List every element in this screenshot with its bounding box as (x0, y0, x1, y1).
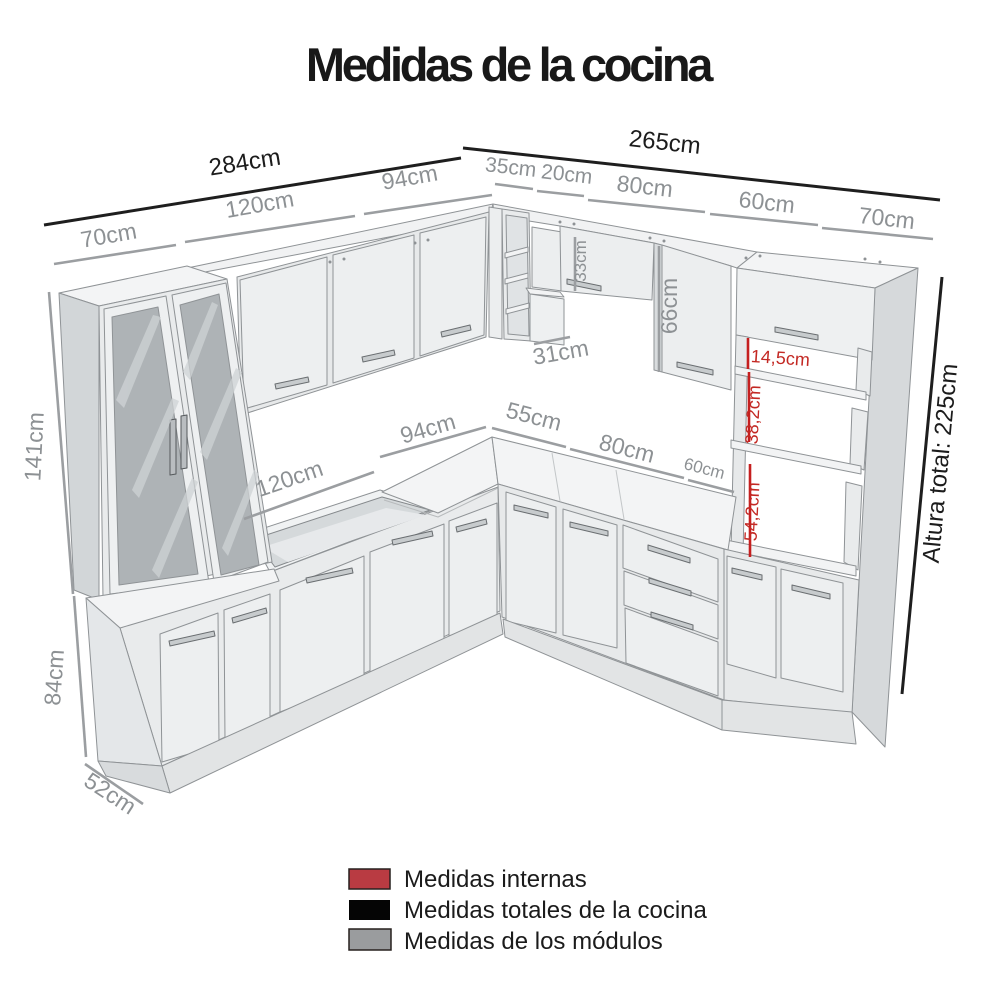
svg-text:Medidas totales de la cocina: Medidas totales de la cocina (404, 897, 708, 924)
svg-text:141cm: 141cm (19, 411, 49, 481)
svg-text:Medidas de los módulos: Medidas de los módulos (404, 928, 663, 955)
svg-text:33cm: 33cm (571, 240, 590, 282)
svg-text:14,5cm: 14,5cm (750, 346, 810, 370)
svg-text:54,2cm: 54,2cm (740, 482, 763, 542)
svg-text:Medidas de la cocina: Medidas de la cocina (306, 38, 714, 91)
svg-text:84cm: 84cm (39, 648, 69, 706)
svg-text:66cm: 66cm (656, 278, 682, 334)
svg-text:38,2cm: 38,2cm (741, 385, 764, 445)
svg-text:Medidas internas: Medidas internas (404, 866, 587, 893)
